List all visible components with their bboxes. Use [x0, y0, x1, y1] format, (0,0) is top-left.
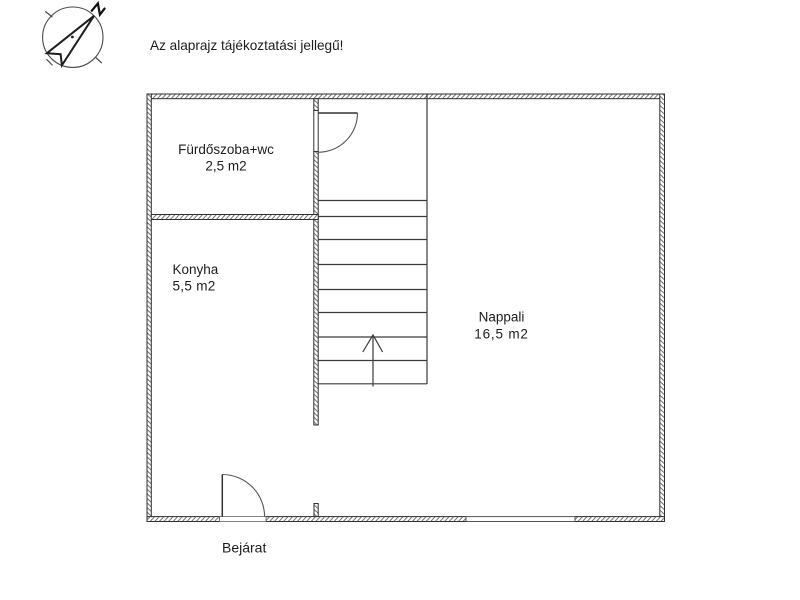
svg-text:Fürdőszoba+wc: Fürdőszoba+wc — [178, 142, 274, 157]
svg-text:Az alaprajz tájékoztatási jell: Az alaprajz tájékoztatási jellegű! — [150, 38, 343, 53]
svg-text:5,5 m2: 5,5 m2 — [173, 279, 216, 294]
svg-text:Bejárat: Bejárat — [222, 540, 266, 556]
svg-text:Nappali: Nappali — [479, 310, 525, 325]
svg-text:Konyha: Konyha — [173, 262, 219, 277]
svg-text:2,5 m2: 2,5 m2 — [205, 159, 246, 174]
svg-text:16,5 m2: 16,5 m2 — [474, 327, 528, 342]
